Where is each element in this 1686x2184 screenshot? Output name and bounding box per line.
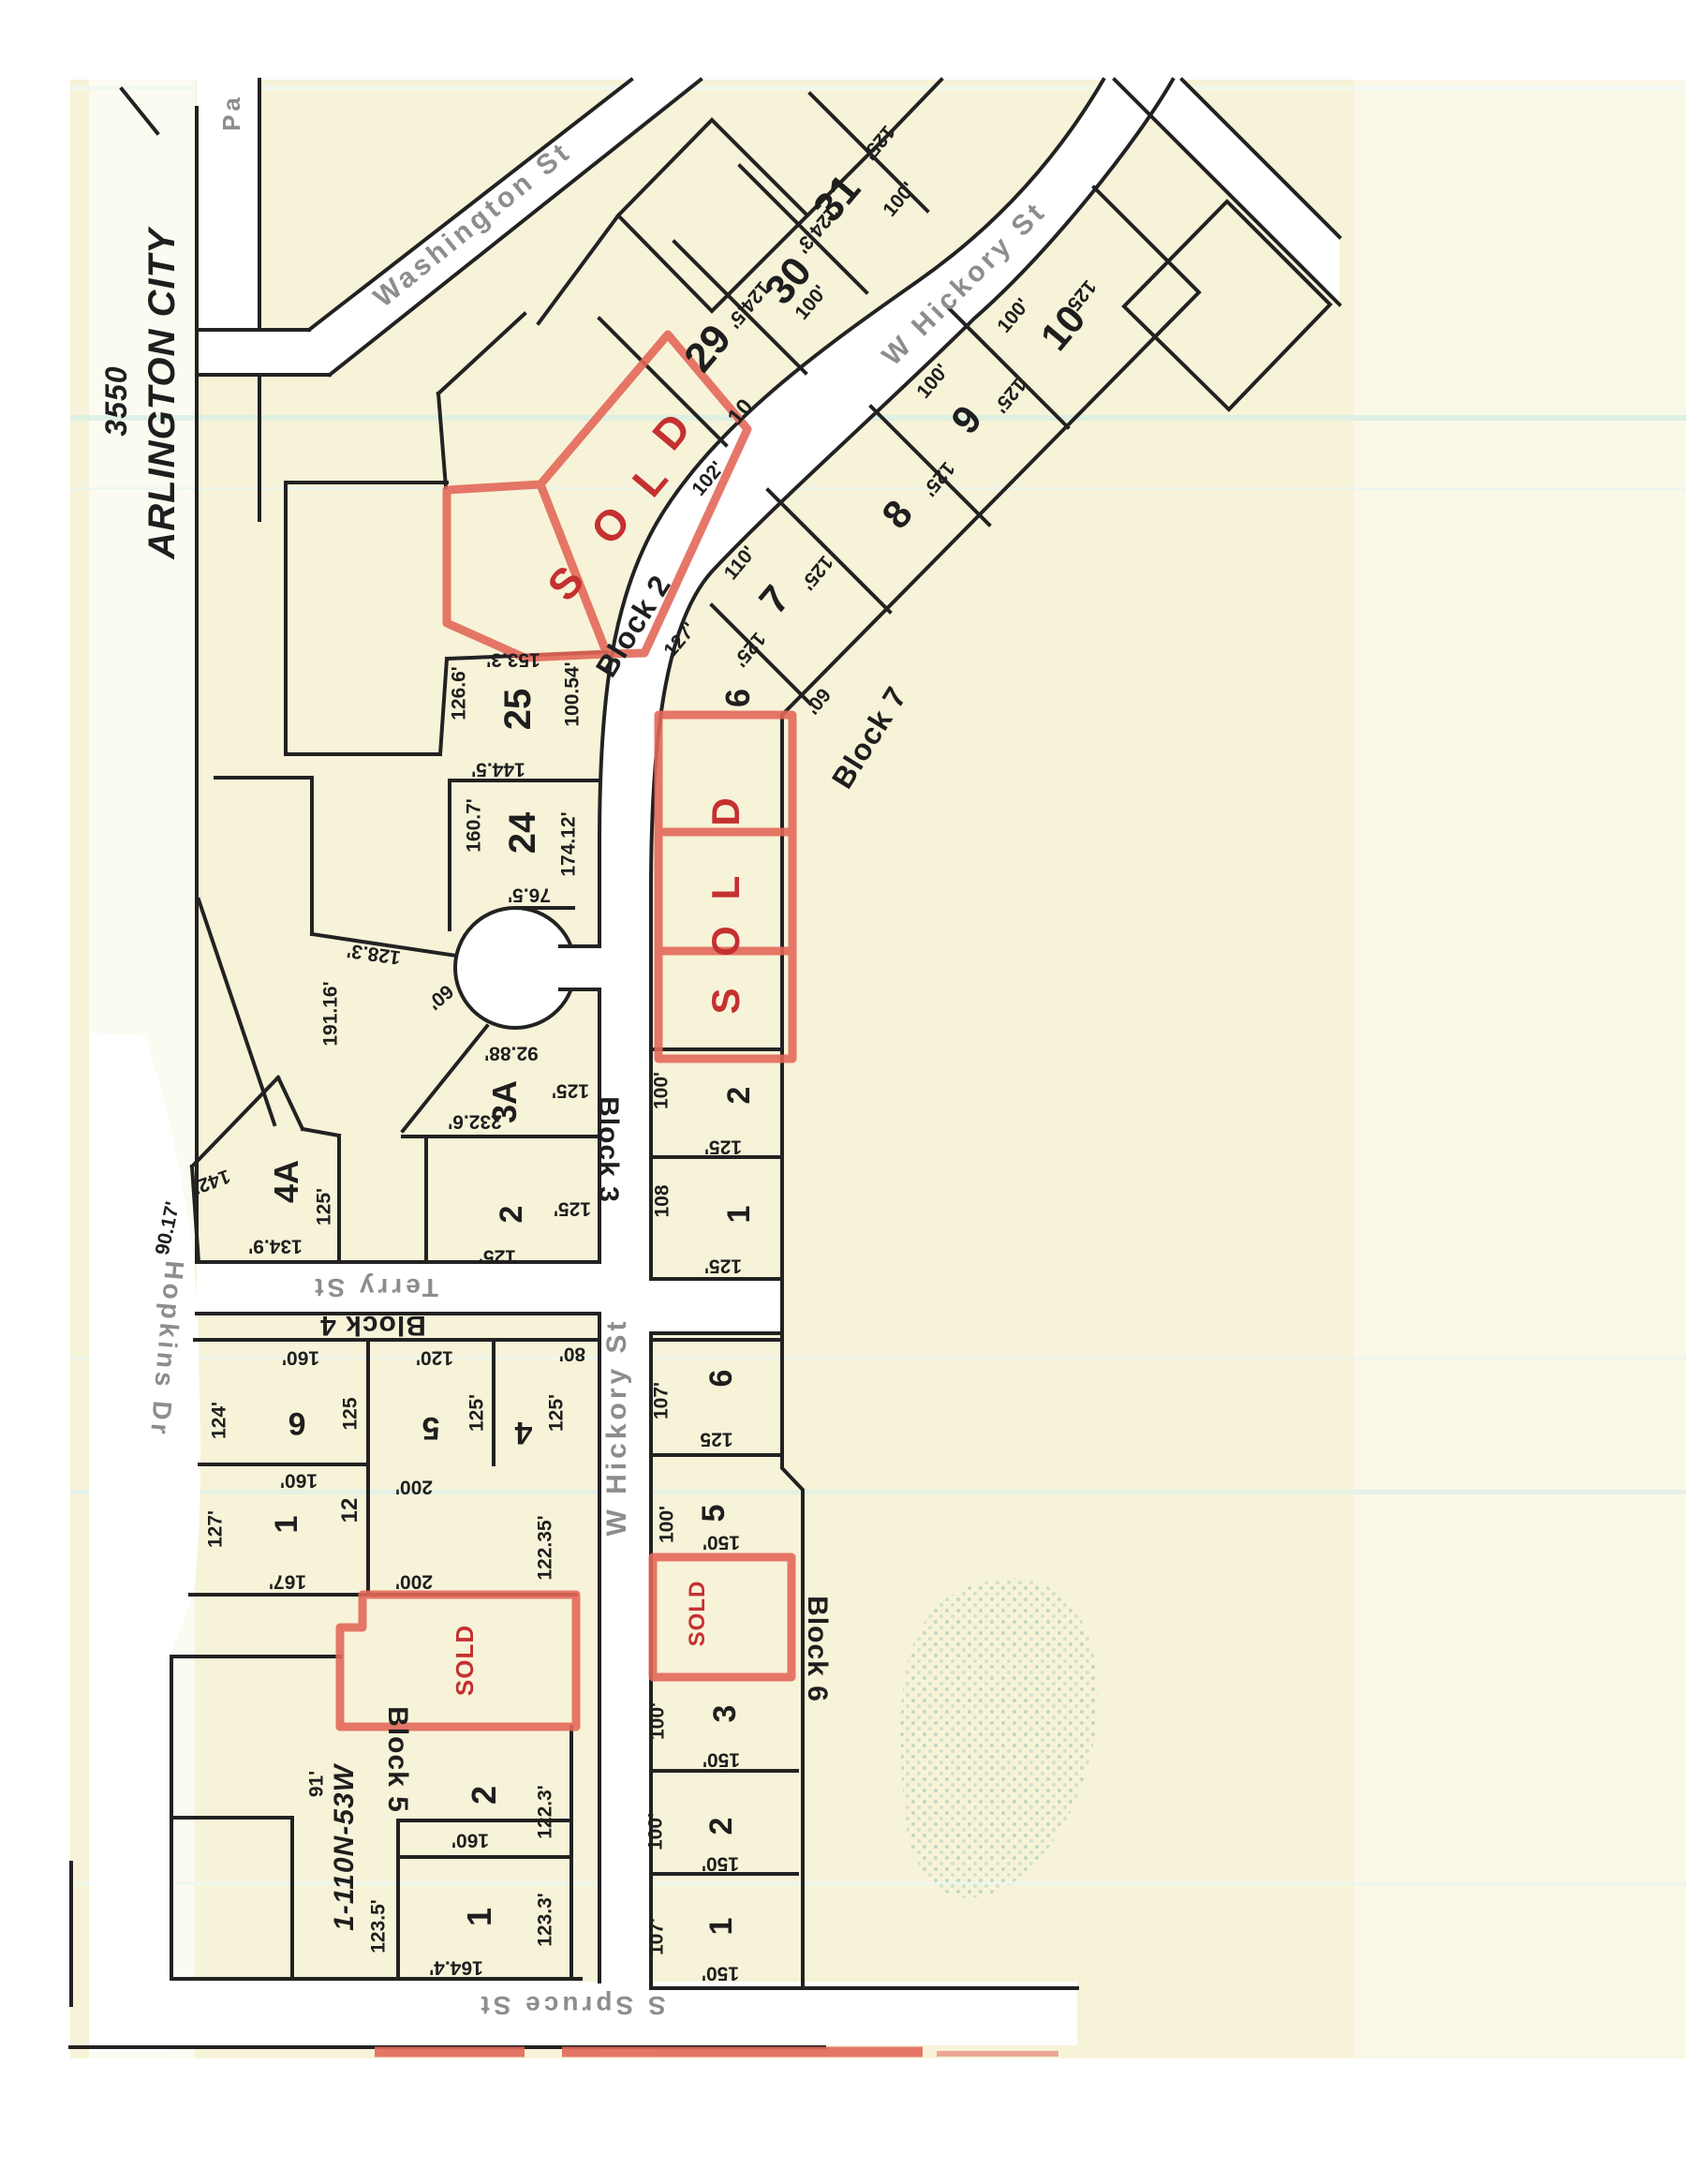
- section-label: 1-110N-53W: [331, 1764, 359, 1931]
- dim-144-5: 144.5': [471, 760, 525, 780]
- dim-153-3: 153.3': [486, 650, 540, 670]
- sold-stamp-block2-letter-s: S: [540, 557, 592, 608]
- lot-number-4a: 4A: [270, 1160, 303, 1203]
- dim-120-lot5: 120': [416, 1348, 453, 1368]
- map-labels-layer: PaWashington StW Hickory StW Hickory StT…: [0, 0, 1686, 2184]
- dim-125-lot6b6: 125: [700, 1430, 732, 1449]
- lot-number-1-block4: 1: [271, 1516, 303, 1534]
- dim-100-54: 100.54': [563, 661, 583, 726]
- dim-160-lot6: 160': [282, 1348, 319, 1368]
- sold-stamp-block5: SOLD: [452, 1625, 477, 1696]
- dim-150-lot2b6: 150': [702, 1854, 739, 1874]
- dim-90-17: 90.17': [153, 1200, 184, 1257]
- lot-number-29: 29: [677, 318, 738, 379]
- dim-125-lot9: 125': [990, 375, 1029, 416]
- dim-174-12: 174.12': [559, 811, 579, 876]
- street-label-s-spruce: S Spruce St: [477, 1992, 665, 2018]
- lot-number-7: 7: [752, 579, 796, 621]
- lot-number-6-block4: 6: [288, 1407, 306, 1439]
- dim-100-lot2b6: 100': [646, 1813, 666, 1850]
- dim-125-lot31: 125': [859, 122, 898, 163]
- dim-125-lot4b4: 125': [547, 1394, 567, 1432]
- street-label-washington: Washington St: [369, 137, 577, 312]
- block-label-5: Block 5: [383, 1706, 411, 1813]
- lot-number-9: 9: [944, 399, 988, 441]
- dim-125-lot6: 125': [730, 629, 769, 670]
- dim-127-lot6: 127': [660, 619, 700, 661]
- dim-200-lower: 200': [395, 1572, 433, 1592]
- lot-number-6-block7: 6: [721, 689, 755, 707]
- dim-122-35: 122.35': [536, 1515, 555, 1580]
- lot-number-1-block3e: 1: [723, 1206, 755, 1224]
- lot-number-8: 8: [875, 494, 919, 536]
- dim-125-lot7: 125': [797, 552, 836, 593]
- dim-125-lot5b4: 125': [467, 1394, 487, 1432]
- dim-125-lot6b4: 125: [341, 1397, 361, 1430]
- dim-164-4: 164.4': [429, 1958, 483, 1978]
- lot-number-24: 24: [504, 812, 541, 854]
- sold-stamp-block7-letter-d: D: [706, 796, 746, 825]
- dim-100-lot5b6: 100': [658, 1506, 677, 1543]
- dim-107-lot6b6: 107': [652, 1382, 672, 1419]
- dim-128-3: 128.3': [346, 941, 402, 968]
- sold-stamp-block2-letter-d: D: [644, 405, 698, 457]
- dim-123-3: 123.3': [536, 1893, 555, 1947]
- dim-160-lot1b4: 160': [280, 1471, 318, 1491]
- lot-number-1-block6: 1: [705, 1918, 737, 1936]
- dim-160-lot2b5: 160': [451, 1831, 489, 1850]
- dim-125-lot2w-e: 125': [554, 1199, 591, 1219]
- block-label-7: Block 7: [826, 681, 911, 793]
- lot-number-5-block6: 5: [698, 1505, 730, 1523]
- street-label-pa: Pa: [219, 94, 244, 131]
- lot-number-25: 25: [499, 689, 537, 731]
- sold-stamp-block7-letter-s: S: [706, 987, 746, 1014]
- lot-number-2-block6: 2: [705, 1818, 737, 1835]
- sold-stamp-block7-letter-o: O: [706, 925, 746, 957]
- dim-191-16: 191.16': [321, 981, 341, 1046]
- lot-number-10-small: 10: [724, 395, 758, 429]
- city-label: ARLINGTON CITY: [143, 228, 181, 558]
- dim-76-5: 76.5': [508, 885, 551, 905]
- dim-124-block4: 124': [210, 1402, 229, 1439]
- lot-number-12: 12: [339, 1498, 362, 1523]
- dim-125-lot8: 125': [919, 458, 958, 499]
- lot-number-2-block5: 2: [467, 1786, 501, 1805]
- dim-100-lot3b6: 100': [648, 1702, 668, 1740]
- dim-160-7: 160.7': [465, 798, 484, 853]
- dim-100-lot31: 100': [880, 179, 919, 220]
- dim-150-lot1b6: 150': [702, 1964, 739, 1983]
- street-label-terry: Terry St: [311, 1274, 438, 1300]
- block-label-4: Block 4: [319, 1311, 426, 1339]
- dim-107-lot1b6: 107': [647, 1918, 667, 1955]
- dim-126-6: 126.6': [450, 666, 469, 721]
- lot-number-1-block5: 1: [463, 1908, 496, 1926]
- block-label-2: Block 2: [590, 570, 675, 681]
- dim-60-block7: 60': [802, 684, 834, 717]
- dim-232-6: 232.6': [448, 1112, 502, 1132]
- street-label-hopkins: Hopkins Dr: [146, 1259, 187, 1438]
- dim-100-lot10: 100': [994, 295, 1033, 336]
- dim-150-lot5b6: 150': [702, 1533, 740, 1553]
- corner-number: 3550: [101, 365, 131, 436]
- dim-124-5: 124.5': [723, 277, 773, 332]
- dim-125-lot2w-s: 125': [479, 1247, 516, 1267]
- street-label-w-hickory-lower: W Hickory St: [603, 1317, 631, 1536]
- dim-142: 142': [191, 1166, 233, 1196]
- block-label-6: Block 6: [803, 1596, 831, 1702]
- dim-92-88: 92.88': [484, 1044, 539, 1063]
- dim-108-lot1e: 108: [653, 1184, 673, 1217]
- dim-100-lot9: 100': [913, 361, 953, 402]
- lot-number-2-block3e: 2: [723, 1087, 755, 1105]
- dim-127-lot1b4: 127': [206, 1510, 226, 1548]
- street-label-w-hickory-upper: W Hickory St: [878, 197, 1052, 371]
- dim-167: 167': [269, 1572, 306, 1592]
- dim-80-lot4: 80': [559, 1345, 585, 1364]
- lot-number-3-block6: 3: [709, 1705, 741, 1723]
- block-label-3: Block 3: [594, 1096, 622, 1203]
- dim-100-lot2e: 100': [652, 1072, 672, 1109]
- lot-number-5-block4: 5: [422, 1412, 440, 1444]
- dim-134-9: 134.9': [248, 1237, 303, 1256]
- sold-stamp-block2-letter-l: L: [625, 455, 675, 504]
- dim-110-lot7: 110': [720, 542, 759, 583]
- lot-number-6-block6: 6: [705, 1370, 737, 1388]
- dim-123-5: 123.5': [369, 1899, 389, 1954]
- sold-stamp-block7-letter-l: L: [706, 875, 746, 900]
- dim-102-lot8: 102': [688, 458, 728, 499]
- dim-125-lot2e: 125': [704, 1137, 742, 1157]
- lot-number-2-block3w: 2: [495, 1206, 527, 1224]
- sold-stamp-block2-letter-o: O: [584, 498, 639, 552]
- dim-122-3: 122.3': [536, 1785, 555, 1839]
- dim-125-4a: 125': [315, 1188, 334, 1226]
- sold-stamp-block6: SOLD: [687, 1581, 709, 1647]
- dim-200-upper: 200': [395, 1478, 433, 1497]
- dim-125-lot1e: 125': [704, 1256, 742, 1276]
- dim-91: 91': [307, 1771, 327, 1797]
- dim-60-culdesac: 60': [423, 981, 456, 1013]
- plat-map-scan: PaWashington StW Hickory StW Hickory StT…: [0, 0, 1686, 2184]
- lot-number-4-block4: 4: [515, 1417, 533, 1449]
- dim-150-lot3b6: 150': [702, 1750, 740, 1770]
- dim-125-3a: 125': [552, 1081, 589, 1101]
